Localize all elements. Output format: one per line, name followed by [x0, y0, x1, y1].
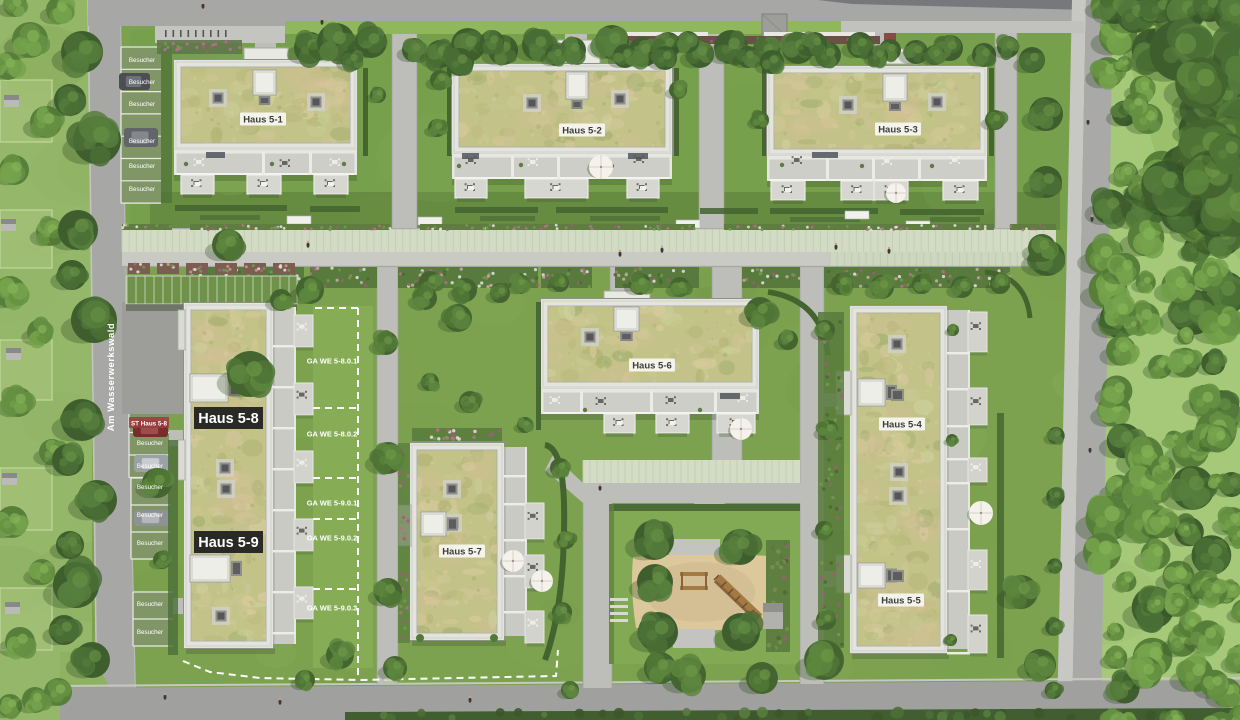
svg-text:Haus 5-8: Haus 5-8 [198, 411, 258, 427]
svg-text:Haus 5-1: Haus 5-1 [243, 114, 283, 125]
svg-text:Haus 5-3: Haus 5-3 [878, 124, 918, 135]
svg-text:GA WE 5-8.0.2: GA WE 5-8.0.2 [307, 430, 358, 439]
svg-text:Haus 5-6: Haus 5-6 [632, 360, 672, 371]
svg-text:GA WE 5-8.0.1: GA WE 5-8.0.1 [307, 357, 358, 366]
svg-text:Haus 5-2: Haus 5-2 [562, 125, 602, 136]
svg-text:GA WE 5-9.0.3: GA WE 5-9.0.3 [307, 604, 358, 613]
svg-text:Haus 5-9: Haus 5-9 [198, 535, 258, 551]
svg-text:Haus 5-4: Haus 5-4 [882, 419, 922, 430]
svg-text:Haus 5-5: Haus 5-5 [881, 595, 921, 606]
svg-text:GA WE 5-9.0.1: GA WE 5-9.0.1 [307, 499, 358, 508]
svg-text:GA WE 5-9.0.2: GA WE 5-9.0.2 [307, 534, 358, 543]
svg-text:Haus 5-7: Haus 5-7 [442, 546, 482, 557]
